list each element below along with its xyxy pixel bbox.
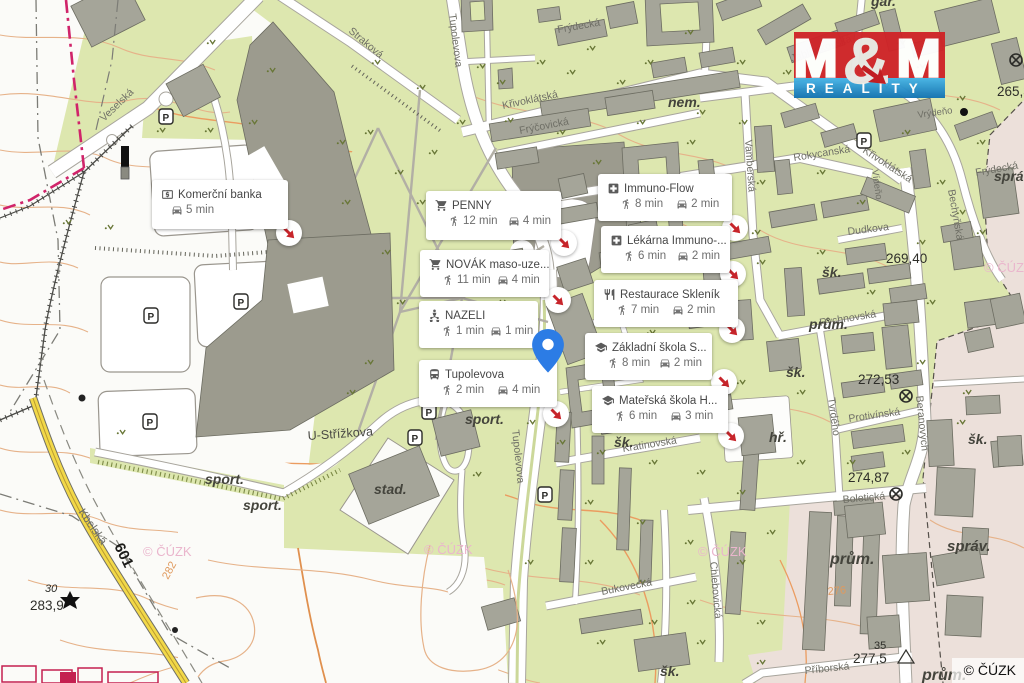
svg-text:© ČÚZK: © ČÚZK: [698, 544, 747, 559]
svg-text:© ČÚZK: © ČÚZK: [984, 260, 1024, 275]
svg-text:272,53: 272,53: [858, 372, 899, 387]
svg-text:© ČÚZK: © ČÚZK: [143, 544, 192, 559]
svg-text:sport.: sport.: [243, 497, 282, 513]
svg-text:správ.: správ.: [947, 538, 990, 555]
svg-text:nem.: nem.: [668, 94, 701, 110]
svg-text:P: P: [426, 408, 433, 419]
svg-text:P: P: [861, 137, 868, 148]
svg-text:P: P: [147, 418, 154, 429]
svg-text:© ČÚZK: © ČÚZK: [424, 542, 473, 557]
svg-text:šk.: šk.: [786, 364, 805, 380]
svg-text:276: 276: [827, 584, 846, 598]
svg-text:sprá: sprá: [994, 168, 1024, 184]
svg-text:šk.: šk.: [614, 434, 633, 450]
svg-text:šk.: šk.: [822, 264, 841, 280]
svg-text:P: P: [542, 491, 549, 502]
svg-text:M: M: [794, 32, 837, 88]
svg-text:šk.: šk.: [968, 431, 987, 447]
svg-text:274,87: 274,87: [848, 470, 889, 485]
svg-text:P: P: [238, 298, 245, 309]
svg-text:P: P: [163, 113, 170, 124]
svg-text:prům.: prům.: [808, 316, 848, 332]
svg-text:prům.: prům.: [829, 551, 874, 568]
svg-text:P: P: [412, 434, 419, 445]
svg-text:269,40: 269,40: [886, 251, 927, 266]
svg-text:stad.: stad.: [374, 481, 407, 497]
svg-text:283,9: 283,9: [30, 598, 64, 613]
svg-text:277,5: 277,5: [853, 651, 887, 666]
svg-text:sport.: sport.: [205, 471, 244, 487]
svg-text:P: P: [148, 312, 155, 323]
svg-text:M: M: [897, 32, 940, 88]
svg-text:gar.: gar.: [870, 0, 896, 9]
svg-text:šk.: šk.: [660, 663, 679, 679]
svg-text:265,3: 265,3: [997, 84, 1024, 99]
svg-text:35: 35: [874, 640, 886, 652]
svg-text:30: 30: [45, 583, 58, 595]
svg-text:sport.: sport.: [465, 411, 504, 427]
svg-text:REALITY: REALITY: [806, 81, 927, 96]
svg-text:hř.: hř.: [769, 429, 787, 445]
